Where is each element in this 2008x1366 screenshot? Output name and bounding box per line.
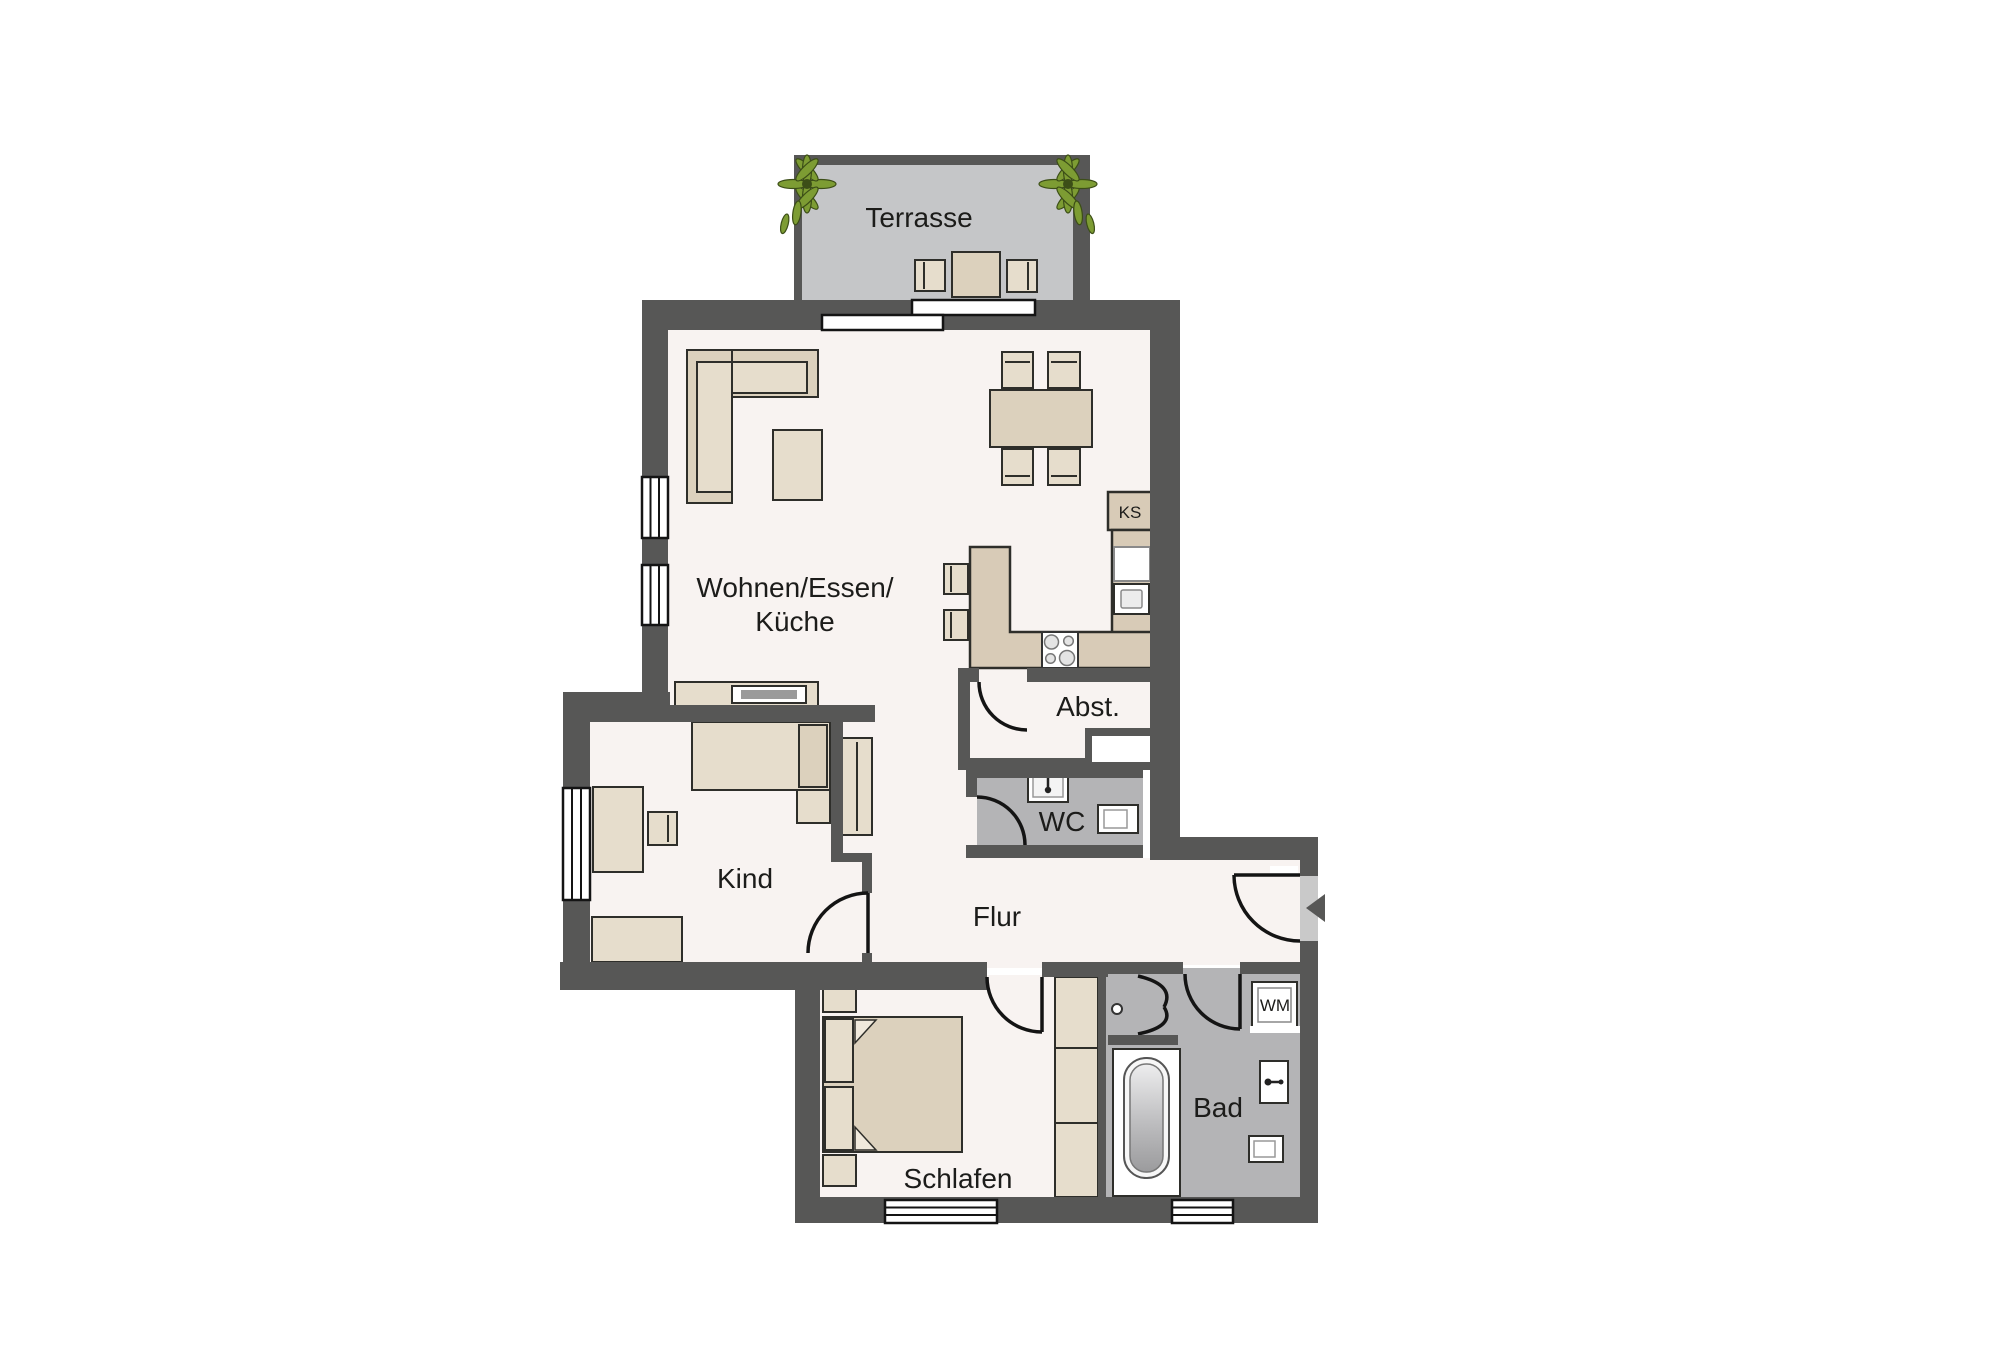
wc-duct <box>1143 770 1150 858</box>
washing-machine: WM <box>1252 982 1297 1028</box>
pillow <box>825 1019 853 1082</box>
label-flur: Flur <box>973 901 1021 932</box>
label-ks: KS <box>1119 503 1142 522</box>
desk-chair <box>648 812 677 845</box>
dining-chair <box>1002 449 1033 485</box>
bath-sink <box>1260 1061 1288 1103</box>
entrance-threshold <box>1270 866 1298 874</box>
terrace-table <box>952 252 1000 297</box>
kitchen-sink <box>1114 547 1150 581</box>
dining-chair <box>1048 449 1080 485</box>
sofa-seat-left <box>697 362 732 492</box>
label-wohnen-line2: Küche <box>755 606 834 637</box>
pillow <box>825 1087 853 1150</box>
label-wc: WC <box>1039 806 1086 837</box>
label-terrasse: Terrasse <box>865 202 972 233</box>
terrace-chair <box>1007 260 1037 292</box>
bathtub-basin <box>1130 1064 1163 1172</box>
terrace-chair <box>915 260 945 291</box>
window-bedroom <box>885 1200 997 1223</box>
hall-wardrobe <box>842 738 872 835</box>
kind-pillow <box>799 725 827 787</box>
kind-nightstand <box>797 790 830 823</box>
label-kind: Kind <box>717 863 773 894</box>
window-living-1 <box>642 477 668 538</box>
bar-stool <box>944 564 968 594</box>
label-bad: Bad <box>1193 1092 1243 1123</box>
oven-door <box>1121 590 1142 608</box>
tv-screen <box>741 690 797 699</box>
floor-plan: WM <box>0 0 2008 1366</box>
tv-sideboard <box>675 682 818 708</box>
bar-stool <box>944 610 968 640</box>
desk <box>593 787 643 872</box>
floor-plan-page: WM <box>0 0 2008 1366</box>
window-bath <box>1172 1200 1233 1223</box>
nightstand <box>823 1155 856 1186</box>
label-wohnen-line1: Wohnen/Essen/ <box>696 572 893 603</box>
duct-niche <box>1092 736 1150 762</box>
bath-shelf <box>1250 1026 1302 1033</box>
dining-chair <box>1048 352 1080 388</box>
dining-chair <box>1002 352 1033 388</box>
hob-icon <box>1042 632 1078 668</box>
window-living-2 <box>642 565 668 625</box>
dresser <box>592 917 682 962</box>
coffee-table <box>773 430 822 500</box>
label-abst: Abst. <box>1056 691 1120 722</box>
wm-label: WM <box>1260 996 1290 1015</box>
dining-table <box>990 390 1092 447</box>
bedroom-wardrobe <box>1055 977 1098 1197</box>
window-kind <box>563 788 590 900</box>
shower-drain <box>1112 1004 1122 1014</box>
label-schlafen: Schlafen <box>904 1163 1013 1194</box>
